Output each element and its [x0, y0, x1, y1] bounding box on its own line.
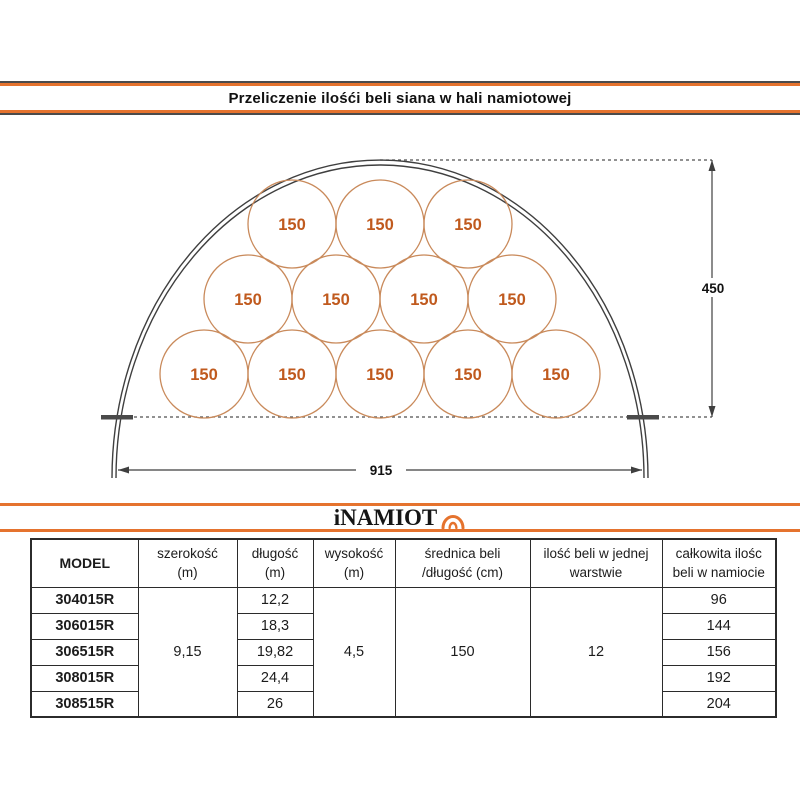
arrow-up-icon: [709, 160, 716, 171]
model-cell: 308015R: [31, 665, 138, 691]
wysokosc-merged-cell: 4,5: [313, 587, 395, 717]
model-cell: 304015R: [31, 587, 138, 613]
model-cell: 308515R: [31, 691, 138, 717]
spec-table: MODEL szerokość (m) długość (m) wysokość…: [30, 538, 777, 718]
bale-diameter-label: 150: [190, 366, 218, 384]
bale-diameter-label: 150: [278, 216, 306, 234]
height-dimension-label: 450: [702, 281, 725, 296]
total-cell: 96: [662, 587, 776, 613]
model-cell: 306015R: [31, 613, 138, 639]
bale-diameter-label: 150: [366, 366, 394, 384]
dlugosc-cell: 26: [237, 691, 313, 717]
bale-diameter-label: 150: [322, 291, 350, 309]
col-header-line: długość: [240, 544, 311, 563]
total-cell: 144: [662, 613, 776, 639]
col-header-unit: (m): [240, 563, 311, 582]
bale-diameter-label: 150: [454, 366, 482, 384]
table-row: 304015R 9,15 12,2 4,5 150 12 96: [31, 587, 776, 613]
col-header-line: średnica beli: [398, 544, 528, 563]
total-cell: 156: [662, 639, 776, 665]
logo-text: iNAMIOT: [334, 506, 438, 529]
dlugosc-cell: 12,2: [237, 587, 313, 613]
col-header-szerokosc: szerokość (m): [138, 539, 237, 587]
total-cell: 204: [662, 691, 776, 717]
ilosc-warstwa-merged-cell: 12: [530, 587, 662, 717]
col-header-line: beli w namiocie: [665, 563, 774, 582]
bale-diameter-label: 150: [410, 291, 438, 309]
col-header-line: wysokość: [316, 544, 393, 563]
right-foot-anchor: [627, 415, 659, 420]
height-dimension: 450: [697, 160, 728, 417]
arrow-left-icon: [118, 467, 129, 474]
col-header-srednica: średnica beli /długość (cm): [395, 539, 530, 587]
left-foot-anchor: [101, 415, 133, 420]
bale-diameter-label: 150: [234, 291, 262, 309]
dlugosc-cell: 18,3: [237, 613, 313, 639]
col-header-line: ilość beli w jednej: [533, 544, 660, 563]
srednica-merged-cell: 150: [395, 587, 530, 717]
bale-diameter-label: 150: [278, 366, 306, 384]
col-header-dlugosc: długość (m): [237, 539, 313, 587]
dlugosc-cell: 24,4: [237, 665, 313, 691]
col-header-ilosc-warstwa: ilość beli w jednej warstwie: [530, 539, 662, 587]
col-header-line: szerokość: [141, 544, 235, 563]
bale-diameter-label: 150: [366, 216, 394, 234]
col-header-wysokosc: wysokość (m): [313, 539, 395, 587]
col-header-calkowita: całkowita ilośc beli w namiocie: [662, 539, 776, 587]
page: { "page": { "title": "Przeliczenie ilość…: [0, 0, 800, 800]
table-header-row: MODEL szerokość (m) długość (m) wysokość…: [31, 539, 776, 587]
col-header-line: warstwie: [533, 563, 660, 582]
logo-band: iNAMIOT: [0, 503, 800, 532]
col-header-unit: (m): [316, 563, 393, 582]
dlugosc-cell: 19,82: [237, 639, 313, 665]
bale-diameter-label: 150: [498, 291, 526, 309]
bale-diameter-label: 150: [454, 216, 482, 234]
width-dimension: 915: [118, 460, 642, 479]
col-header-unit: /długość (cm): [398, 563, 528, 582]
tent-arch-inner-line: [116, 165, 644, 478]
col-header-model: MODEL: [31, 539, 138, 587]
tent-arch-icon: [440, 506, 466, 530]
model-cell: 306515R: [31, 639, 138, 665]
col-header-line: całkowita ilośc: [665, 544, 774, 563]
tent-arch-outer-line: [112, 160, 648, 478]
bale-diameter-label: 150: [542, 366, 570, 384]
col-header-unit: (m): [141, 563, 235, 582]
total-cell: 192: [662, 665, 776, 691]
col-header-line: MODEL: [34, 554, 136, 573]
width-dimension-label: 915: [370, 463, 393, 478]
arrow-down-icon: [709, 406, 716, 417]
szerokosc-merged-cell: 9,15: [138, 587, 237, 717]
arrow-right-icon: [631, 467, 642, 474]
